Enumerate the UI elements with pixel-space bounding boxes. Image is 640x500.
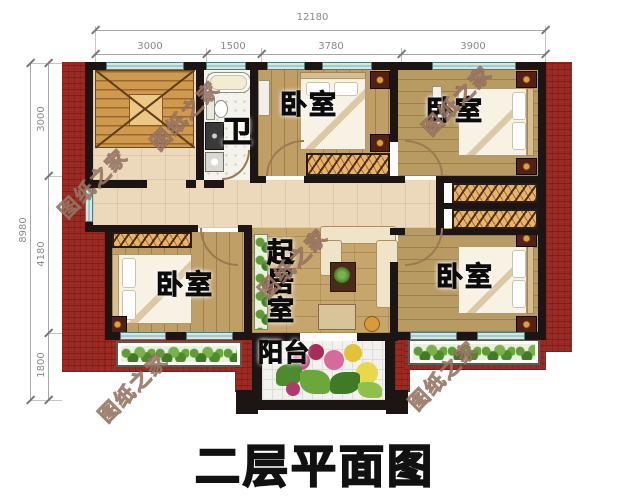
wall-bedroom4-top-right (443, 229, 546, 235)
dim-ext (48, 176, 62, 177)
leaf-4 (358, 382, 382, 398)
dim-top-overall: 12180 (275, 13, 350, 23)
wall-balcony-bottom (250, 400, 395, 410)
wall-stair-bottom-b (186, 180, 196, 188)
window-top-bedroom1-b (322, 62, 372, 70)
bed4-pillow-top (512, 250, 526, 278)
label-bathroom: 卫 (222, 118, 252, 148)
closet-bedroom-top-right (452, 183, 538, 203)
window-bottom-bedroom4-b (477, 332, 525, 340)
floor-lamp (364, 316, 380, 332)
wall-balcony-post-left (236, 390, 258, 414)
bed2-nightstand-top (516, 71, 537, 88)
label-bedroom-bottom-left: 卧室 (156, 272, 214, 299)
window-top-bath (206, 62, 246, 70)
tv-bench (318, 304, 356, 330)
dim-top-seg-line (95, 54, 545, 55)
leaf-2 (300, 370, 330, 394)
window-top-stair (106, 62, 184, 70)
wall-balcony-top-b (357, 333, 398, 341)
window-bottom-bedroom3-b (186, 332, 233, 340)
label-balcony: 阳台 (258, 340, 310, 365)
dim-ext (48, 333, 62, 334)
closet-bedroom-bottom-right (452, 209, 538, 229)
wall-bedroom1-bottom-b (304, 176, 405, 183)
coffee-table-plant (334, 267, 350, 283)
wall-hall-bottom-b (238, 225, 252, 232)
wall-hall-bottom-a (112, 225, 198, 232)
dim-top-seg-2: 1500 (211, 42, 255, 52)
flower-4 (344, 344, 362, 362)
dim-left-seg-3: 1800 (37, 343, 47, 387)
bed2-nightstand-bottom (516, 158, 537, 175)
bed3-pillow-top (122, 258, 136, 288)
wall-bedroom1-bottom-a (258, 176, 266, 183)
wall-left-jog (85, 225, 112, 232)
label-bedroom-top-middle: 卧室 (280, 92, 338, 119)
label-bedroom-bottom-right: 卧室 (436, 264, 494, 291)
dim-top-seg-4: 3900 (451, 42, 495, 52)
bed4-nightstand-bottom (516, 316, 537, 333)
flower-2 (308, 344, 324, 360)
roof-right (546, 62, 572, 352)
wall-bedroom4-top-left (390, 228, 405, 235)
bed2-headboard (527, 88, 534, 156)
bed1-cabinet (258, 80, 270, 116)
dim-ext-right (545, 26, 546, 62)
flower-6 (286, 382, 300, 396)
wall-bedroom3-left (105, 232, 112, 332)
wardrobe-bedroom-bottom-left (112, 232, 192, 248)
dim-left-seg-1: 3000 (37, 97, 47, 141)
window-bottom-bedroom4-a (410, 332, 457, 340)
dim-left-seg-line (48, 63, 49, 400)
wall-bedroom2-bottom (443, 176, 546, 183)
window-bottom-bedroom3-a (120, 332, 166, 340)
bed2-pillow-top (512, 92, 526, 120)
dim-top-seg-3: 3780 (309, 42, 353, 52)
dim-left-overall-line (30, 63, 31, 400)
flower-3 (324, 350, 344, 370)
bed4-headboard (527, 246, 534, 314)
window-top-bedroom1-a (267, 62, 305, 70)
floorplan-canvas: 卫 卧室 卧室 卧室 卧室 起居室 阳台 图纸之家 图纸之家 图纸之家 图纸之家… (0, 0, 640, 500)
dim-left-seg-2: 4180 (37, 232, 47, 276)
dim-top-seg-1: 3000 (128, 42, 172, 52)
wall-bedroom4-left (390, 262, 398, 333)
bed1-nightstand-bottom (370, 134, 390, 152)
bed2-pillow-bottom (512, 122, 526, 150)
wall-bath-bottom (204, 180, 224, 188)
dim-top-overall-line (95, 30, 545, 31)
wall-exterior-right (538, 70, 546, 340)
leaf-3 (330, 372, 360, 394)
dim-left-overall: 8980 (19, 208, 29, 252)
wall-bedroom1-2-divider (390, 70, 398, 142)
wardrobe-bedroom-top-middle (306, 153, 390, 176)
dim-ext-left (95, 26, 96, 62)
floorplan-title: 二层平面图 (150, 430, 480, 495)
wall-closet-divider (443, 203, 546, 209)
bed1-nightstand-top (370, 71, 390, 89)
bed4-pillow-bottom (512, 280, 526, 308)
